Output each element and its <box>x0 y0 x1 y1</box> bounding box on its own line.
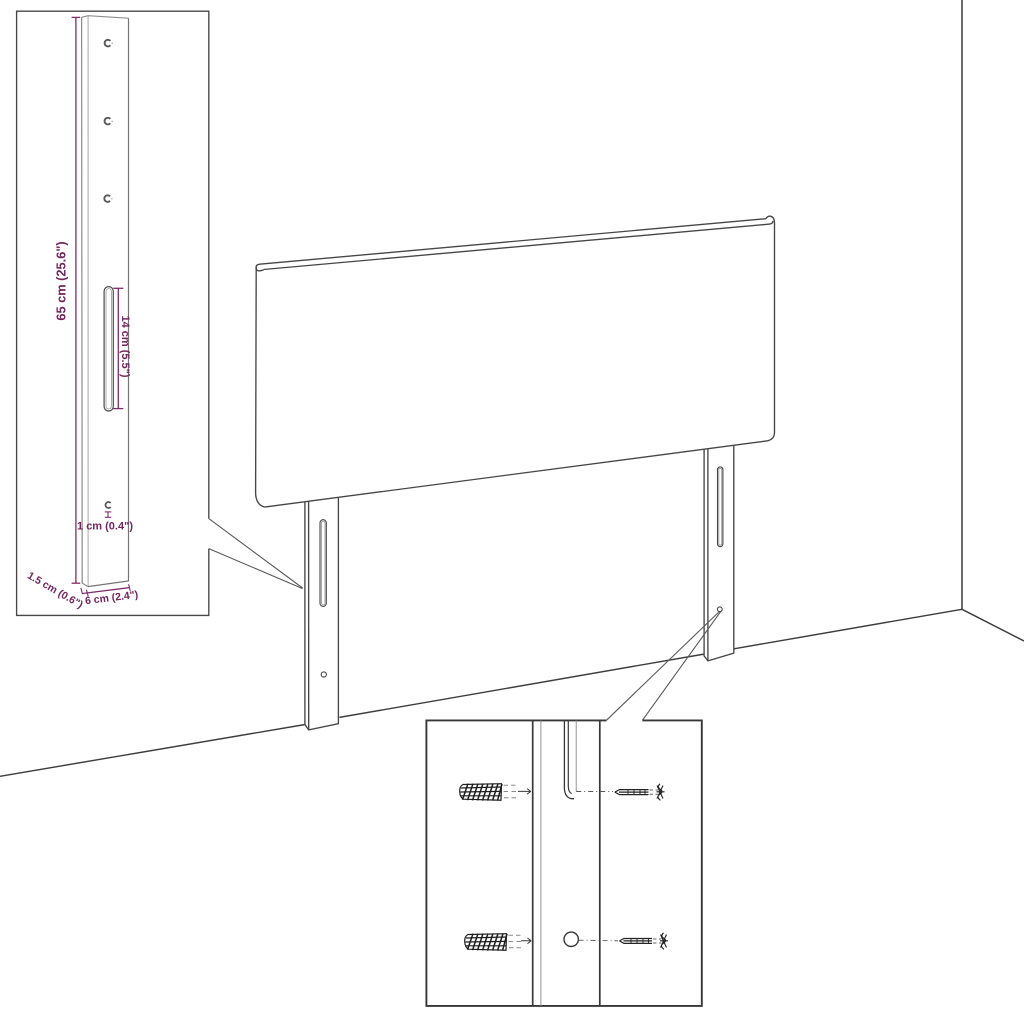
svg-text:65 cm (25.6"): 65 cm (25.6") <box>54 241 69 320</box>
svg-text:1 cm (0.4"): 1 cm (0.4") <box>77 521 133 533</box>
svg-text:14 cm (5.5"): 14 cm (5.5") <box>119 315 131 377</box>
